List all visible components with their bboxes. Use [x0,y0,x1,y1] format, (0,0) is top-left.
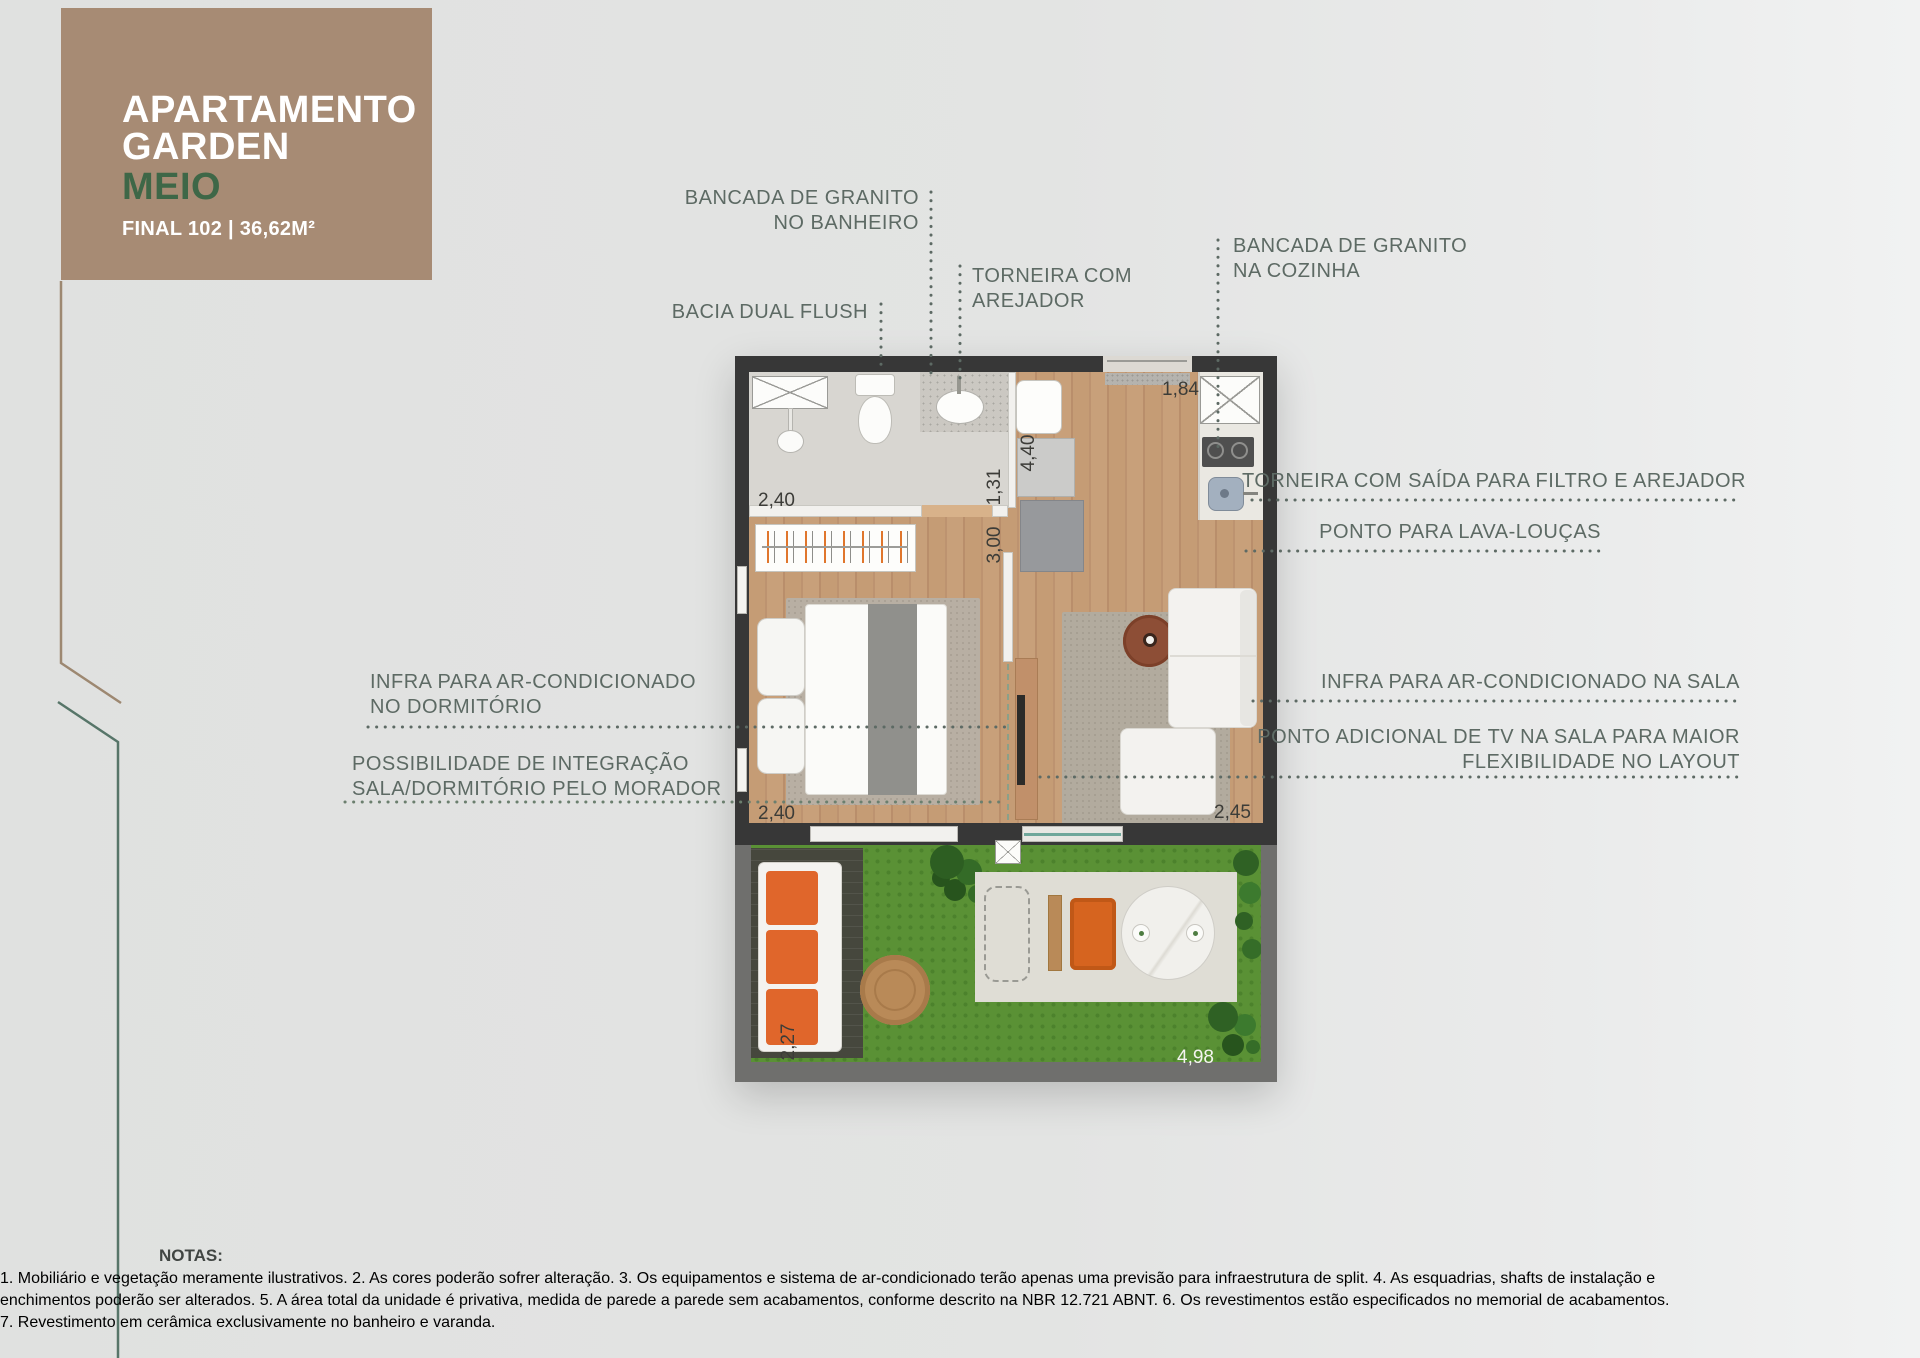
callout-bancada-banheiro: BANCADA DE GRANITO NO BANHEIRO [619,186,919,236]
kitchen-sink-drain [1220,489,1229,498]
callout-text: FLEXIBILIDADE NO LAYOUT [1240,750,1740,775]
toilet-tank [855,374,895,396]
bedroom-living-divider-wall [1003,552,1013,662]
dim-hall-depth: 1,31 [984,457,1004,517]
callout-text: NA COZINHA [1233,259,1467,284]
garden-wall-right [1261,845,1277,1082]
bathroom-sink [936,390,984,424]
notes-title: NOTAS: [159,1246,223,1266]
bedroom-window-bottom [737,748,747,792]
entry-door-leaf [1107,360,1187,362]
callout-torneira-arejador: TORNEIRA COM AREJADOR [972,264,1132,314]
dim-kitchen-depth: 4,40 [1018,423,1038,483]
callout-ponto-tv: PONTO ADICIONAL DE TV NA SALA PARA MAIOR… [1240,725,1740,775]
notes-line-1: 1. Mobiliário e vegetação meramente ilus… [0,1270,1655,1288]
garden-sofa-cushion-1 [766,871,818,925]
bedroom-garden-window [810,826,958,842]
sofa-back-cushions [1240,590,1256,726]
callout-text: AREJADOR [972,289,1132,314]
infra-reserve-dashed-box [984,886,1030,982]
callout-text: BACIA DUAL FLUSH [568,300,868,325]
wall-top-left [735,356,1103,372]
bathroom-divider-wall [1008,372,1016,508]
plate-garnish-right [1193,931,1198,936]
bathroom-shelf-box [752,376,828,409]
callout-text: BANCADA DE GRANITO [619,186,919,211]
plate-garnish-left [1139,931,1144,936]
decorative-brown-line [61,281,121,703]
unit-number-area-label: FINAL 102 | 36,62M² [122,218,315,241]
wardrobe-rail [762,546,908,548]
callout-text: BANCADA DE GRANITO [1233,234,1467,259]
garden-sofa-cushion-2 [766,930,818,984]
pillow-bottom [757,698,805,774]
pillow-top [757,618,805,696]
garden-wood-table [860,955,930,1025]
toilet-bowl [858,396,892,444]
cooktop-burner-right [1231,442,1248,459]
garden-plants-right [1233,850,1259,876]
page: APARTAMENTO GARDEN MEIO FINAL 102 | 36,6… [0,0,1920,1358]
callout-integracao: POSSIBILIDADE DE INTEGRAÇÃO SALA/DORMITÓ… [352,752,722,802]
callout-lava-loucas: PONTO PARA LAVA-LOUÇAS [1301,520,1601,545]
callout-text: SALA/DORMITÓRIO PELO MORADOR [352,777,722,802]
unit-variant-label: MEIO [122,166,221,209]
dim-living-width: 2,45 [1214,802,1251,824]
dim-room-depth: 3,00 [984,515,1004,575]
garden-bench [1048,895,1062,971]
garden-wall-left [735,845,751,1082]
callout-infra-sala: INFRA PARA AR-CONDICIONADO NA SALA [1240,670,1740,695]
page-title-line1: APARTAMENTO [122,92,417,129]
dim-bathroom-width: 2,40 [758,490,795,512]
callout-text: INFRA PARA AR-CONDICIONADO [370,670,696,695]
callout-torneira-filtro: TORNEIRA COM SAÍDA PARA FILTRO E AREJADO… [1242,469,1742,494]
ac-condenser-box [995,840,1021,864]
brand-header-box: APARTAMENTO GARDEN MEIO FINAL 102 | 36,6… [61,8,432,280]
cooktop-burner-left [1207,442,1224,459]
dim-garden-depth: 2,27 [778,1012,798,1072]
dim-entry-width: 1,84 [1162,379,1199,401]
shower-head-icon [777,430,804,453]
entry-doorway [1103,356,1192,372]
garden-chair-orange [1070,898,1116,970]
garden-bush-bottom-right [1208,1002,1238,1032]
storage-cabinet [1020,500,1084,572]
bathroom-door-threshold [922,505,992,517]
sofa-seam [1170,655,1256,657]
bedroom-window-top [737,566,747,614]
side-table-decor [1143,633,1157,647]
callout-text: INFRA PARA AR-CONDICIONADO NA SALA [1240,670,1740,695]
bed-runner [868,604,917,795]
tv-icon [1017,695,1025,785]
dim-garden-width: 4,98 [1177,1047,1214,1069]
callout-text: PONTO PARA LAVA-LOUÇAS [1301,520,1601,545]
dim-bedroom-width: 2,40 [758,803,795,825]
notes-line-2: enchimentos poderão ser alterados. 5. A … [0,1292,1669,1310]
garden-plant-top [930,845,964,879]
callout-text: TORNEIRA COM SAÍDA PARA FILTRO E AREJADO… [1242,469,1742,494]
decorative-green-line [58,702,118,1358]
sofa-chaise [1120,728,1216,815]
notes-line-3: 7. Revestimento em cerâmica exclusivamen… [0,1314,495,1332]
callout-text: PONTO ADICIONAL DE TV NA SALA PARA MAIOR [1240,725,1740,750]
integration-dashed-line [1007,664,1009,820]
kitchen-cabinet-box [1200,376,1260,424]
bathroom-faucet-icon [957,376,961,394]
callout-bancada-cozinha: BANCADA DE GRANITO NA COZINHA [1233,234,1467,284]
glass-door-pane [1024,833,1121,836]
callout-bacia-dual-flush: BACIA DUAL FLUSH [568,300,868,325]
callout-text: TORNEIRA COM [972,264,1132,289]
callout-text: POSSIBILIDADE DE INTEGRAÇÃO [352,752,722,777]
page-title-line2: GARDEN [122,129,290,166]
callout-text: NO BANHEIRO [619,211,919,236]
callout-text: NO DORMITÓRIO [370,695,696,720]
callout-infra-dormitorio: INFRA PARA AR-CONDICIONADO NO DORMITÓRIO [370,670,696,720]
